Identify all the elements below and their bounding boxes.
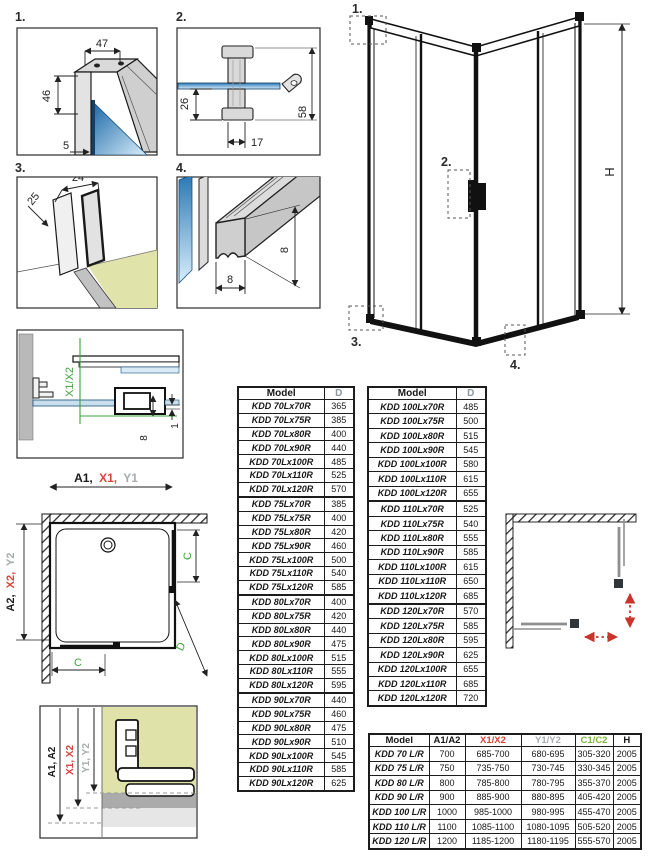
value-cell: 485 [456, 400, 486, 414]
model-cell: KDD 90Lx75R [238, 707, 324, 721]
table-row: KDD 110Lx120R685 [368, 589, 486, 604]
value-cell: 555 [324, 665, 354, 679]
value-cell: 595 [324, 678, 354, 692]
table-row: KDD 75Lx100R500 [238, 553, 354, 567]
model-cell: KDD 70 L/R [369, 747, 429, 762]
column-header-model: Model [238, 387, 324, 400]
model-cell: KDD 110Lx70R [368, 501, 456, 516]
model-cell: KDD 80Lx100R [238, 651, 324, 665]
adjust-a-label: A1, A2 [47, 746, 58, 777]
dim-25: 25 [25, 191, 42, 208]
adjust-x-label: X1, X2 [65, 745, 76, 775]
model-cell: KDD 70Lx90R [238, 441, 324, 455]
value-cell: 625 [456, 648, 486, 662]
table-row: KDD 70Lx75R385 [238, 413, 354, 427]
table-row: KDD 70Lx90R440 [238, 441, 354, 455]
model-cell: KDD 90Lx110R [238, 762, 324, 776]
model-cell: KDD 70Lx70R [238, 400, 324, 414]
value-cell: 730-745 [521, 761, 575, 776]
header-row: ModelA1/A2X1/X2Y1/Y2C1/C2H [369, 734, 641, 747]
dim-5: 5 [63, 140, 69, 152]
value-cell: 2005 [613, 790, 641, 805]
model-cell: KDD 75Lx120R [238, 580, 324, 594]
table-row: KDD 120Lx120R720 [368, 691, 486, 706]
table-row: KDD 75Lx80R420 [238, 525, 354, 539]
detail-4-label: 4. [176, 161, 186, 175]
model-cell: KDD 70Lx100R [238, 455, 324, 469]
column-header-y1-y2: Y1/Y2 [521, 734, 575, 747]
model-cell: KDD 90Lx70R [238, 693, 324, 707]
value-cell: 615 [456, 560, 486, 574]
model-cell: KDD 90Lx90R [238, 735, 324, 749]
value-cell: 475 [324, 637, 354, 651]
value-cell: 685 [456, 589, 486, 604]
table-row: KDD 90Lx90R510 [238, 735, 354, 749]
width-span-label: A1, X1, Y1 [74, 471, 138, 485]
detail-1-label: 1. [15, 10, 25, 24]
column-header-h: H [613, 734, 641, 747]
value-cell: 330-345 [575, 761, 613, 776]
table-row: KDD 120Lx75R585 [368, 619, 486, 633]
seal-section-face [216, 218, 245, 258]
column-header-a1-a2: A1/A2 [429, 734, 465, 747]
wall-left [506, 514, 513, 648]
value-cell: 540 [456, 516, 486, 530]
value-cell: 440 [324, 441, 354, 455]
value-cell: 420 [324, 525, 354, 539]
value-cell: 2005 [613, 776, 641, 791]
value-cell: 555 [456, 531, 486, 545]
callout-1-label: 1. [352, 2, 362, 16]
table-row: KDD 80Lx90R475 [238, 637, 354, 651]
header-row: ModelD [368, 387, 486, 400]
model-cell: KDD 120Lx120R [368, 691, 456, 706]
model-cell: KDD 100Lx100R [368, 457, 456, 471]
side-pane [199, 175, 208, 270]
model-cell: KDD 80Lx110R [238, 665, 324, 679]
value-cell: 735-750 [465, 761, 521, 776]
model-cell: KDD 75Lx100R [238, 553, 324, 567]
value-cell: 650 [456, 574, 486, 588]
value-cell: 2005 [613, 761, 641, 776]
value-cell: 685 [456, 676, 486, 690]
depth-span-label: A2, X2, Y2 [5, 552, 17, 611]
column-header-x1-x2: X1/X2 [465, 734, 521, 747]
value-cell: 800 [429, 776, 465, 791]
model-cell: KDD 120Lx90R [368, 648, 456, 662]
dim-46: 46 [41, 90, 53, 102]
value-cell: 880-895 [521, 790, 575, 805]
value-cell: 420 [324, 609, 354, 623]
value-cell: 525 [324, 469, 354, 483]
handle-right [169, 586, 176, 593]
model-cell: KDD 120Lx70R [368, 604, 456, 619]
value-cell: 655 [456, 662, 486, 676]
value-cell: 405-420 [575, 790, 613, 805]
table-row: KDD 100 L/R1000985-1000980-995455-470200… [369, 805, 641, 820]
wall [19, 334, 33, 440]
table-row: KDD 80Lx110R555 [238, 665, 354, 679]
model-cell: KDD 90 L/R [369, 790, 429, 805]
dim-24: 24 [72, 172, 84, 184]
model-cell: KDD 120 L/R [369, 834, 429, 849]
dim-8-right: 8 [279, 247, 291, 253]
value-cell: 400 [324, 595, 354, 609]
model-cell: KDD 80Lx75R [238, 609, 324, 623]
value-cell: 580 [456, 457, 486, 471]
table-row: KDD 110Lx75R540 [368, 516, 486, 530]
table-row: KDD 80Lx70R400 [238, 595, 354, 609]
c-right-label: C [182, 552, 194, 560]
table-row: KDD 70Lx110R525 [238, 469, 354, 483]
table-row: KDD 70Lx80R400 [238, 427, 354, 441]
table-row: KDD 80Lx100R515 [238, 651, 354, 665]
value-cell: 585 [456, 619, 486, 633]
adjustment-detail-drawing: A1, A2 X1, X2 Y1, Y2 [47, 707, 196, 837]
value-cell: 585 [456, 545, 486, 559]
glass-pane-front [53, 193, 78, 275]
value-cell: 555-570 [575, 834, 613, 849]
model-cell: KDD 120Lx75R [368, 619, 456, 633]
size-table-d-left: ModelDKDD 70Lx70R365KDD 70Lx75R385KDD 70… [237, 386, 355, 792]
table-row: KDD 70Lx100R485 [238, 455, 354, 469]
table-row: KDD 100Lx80R515 [368, 428, 486, 442]
model-cell: KDD 100Lx75R [368, 414, 456, 428]
column-header-model: Model [368, 387, 456, 400]
model-cell: KDD 70Lx110R [238, 469, 324, 483]
table-row: KDD 120 L/R12001185-12001180-1195555-570… [369, 834, 641, 849]
value-cell: 615 [456, 472, 486, 486]
value-cell: 485 [324, 455, 354, 469]
value-cell: 545 [456, 443, 486, 457]
value-cell: 1100 [429, 819, 465, 834]
table-row: KDD 70 L/R700685-700680-695305-3202005 [369, 747, 641, 762]
enclosure-isometric-drawing: H 1. 2. 3. 4. [349, 2, 630, 372]
model-cell: KDD 70Lx80R [238, 427, 324, 441]
fixed-glass [33, 400, 117, 406]
table-row: KDD 120Lx110R685 [368, 676, 486, 690]
model-cell: KDD 100 L/R [369, 805, 429, 820]
value-cell: 985-1000 [465, 805, 521, 820]
plan-view-drawing: C C D A2, X2, Y2 [5, 514, 207, 683]
table-row: KDD 75 L/R750735-750730-745330-3452005 [369, 761, 641, 776]
table-row: KDD 90Lx110R585 [238, 762, 354, 776]
value-cell: 780-795 [521, 776, 575, 791]
model-cell: KDD 75Lx110R [238, 567, 324, 581]
table-row: KDD 80Lx75R420 [238, 609, 354, 623]
model-cell: KDD 110Lx120R [368, 589, 456, 604]
value-cell: 570 [324, 482, 354, 496]
size-table-d-right: ModelDKDD 100Lx70R485KDD 100Lx75R500KDD … [367, 386, 487, 707]
table-row: KDD 75Lx120R585 [238, 580, 354, 594]
model-cell: KDD 100Lx80R [368, 428, 456, 442]
value-cell: 720 [456, 691, 486, 706]
table-row: KDD 70Lx120R570 [238, 482, 354, 496]
section-detail-drawing: X1/X2 8 1 [19, 334, 181, 441]
model-cell: KDD 90Lx100R [238, 749, 324, 763]
value-cell: 885-900 [465, 790, 521, 805]
value-cell: 700 [429, 747, 465, 762]
table-row: KDD 75Lx70R385 [238, 497, 354, 511]
table-row: KDD 75Lx75R400 [238, 511, 354, 525]
value-cell: 505-520 [575, 819, 613, 834]
value-cell: 1185-1200 [465, 834, 521, 849]
column-header-c1-c2: C1/C2 [575, 734, 613, 747]
model-cell: KDD 75Lx75R [238, 511, 324, 525]
table-row: KDD 100Lx120R655 [368, 486, 486, 501]
value-cell: 475 [324, 721, 354, 735]
table-row: KDD 90Lx75R460 [238, 707, 354, 721]
value-cell: 750 [429, 761, 465, 776]
value-cell: 385 [324, 497, 354, 511]
value-cell: 980-995 [521, 805, 575, 820]
value-cell: 355-370 [575, 776, 613, 791]
glass-pane [178, 83, 280, 89]
table-row: KDD 110Lx100R615 [368, 560, 486, 574]
table-row: KDD 110Lx80R555 [368, 531, 486, 545]
adjust-y-label: Y1, Y2 [81, 743, 92, 773]
column-header-model: Model [369, 734, 429, 747]
table-row: KDD 80 L/R800785-800780-795355-3702005 [369, 776, 641, 791]
table-row: KDD 70Lx70R365 [238, 400, 354, 414]
shower-tray [50, 523, 175, 648]
model-cell: KDD 110 L/R [369, 819, 429, 834]
model-cell: KDD 80Lx90R [238, 637, 324, 651]
model-cell: KDD 80Lx80R [238, 623, 324, 637]
model-cell: KDD 75Lx80R [238, 525, 324, 539]
model-cell: KDD 75Lx70R [238, 497, 324, 511]
value-cell: 1180-1195 [521, 834, 575, 849]
model-cell: KDD 100Lx90R [368, 443, 456, 457]
value-cell: 1200 [429, 834, 465, 849]
wall-top [42, 514, 207, 523]
table-row: KDD 120Lx70R570 [368, 604, 486, 619]
table-row: KDD 90Lx70R440 [238, 693, 354, 707]
handle-bottom [570, 619, 579, 628]
dim-8-section: 8 [139, 435, 150, 441]
value-cell: 460 [324, 707, 354, 721]
model-cell: KDD 75 L/R [369, 761, 429, 776]
value-cell: 570 [456, 604, 486, 619]
dimension-table-main: ModelA1/A2X1/X2Y1/Y2C1/C2HKDD 70 L/R7006… [368, 733, 642, 850]
detail-3-label: 3. [15, 161, 25, 175]
value-cell: 655 [456, 486, 486, 501]
value-cell: 595 [456, 633, 486, 647]
value-cell: 440 [324, 693, 354, 707]
value-cell: 305-320 [575, 747, 613, 762]
value-cell: 1080-1095 [521, 819, 575, 834]
dim-58: 58 [297, 106, 309, 118]
wall-post [75, 72, 91, 155]
model-cell: KDD 110Lx100R [368, 560, 456, 574]
value-cell: 900 [429, 790, 465, 805]
width-span-dimension: A1, X1, Y1 [50, 471, 172, 487]
model-cell: KDD 110Lx90R [368, 545, 456, 559]
value-cell: 515 [456, 428, 486, 442]
model-cell: KDD 100Lx110R [368, 472, 456, 486]
door-handle [468, 180, 486, 212]
handle-bottom [113, 642, 120, 649]
value-cell: 385 [324, 413, 354, 427]
model-cell: KDD 100Lx120R [368, 486, 456, 501]
table-row: KDD 100Lx110R615 [368, 472, 486, 486]
sliding-direction-diagram [506, 514, 636, 648]
value-cell: 510 [324, 735, 354, 749]
value-cell: 540 [324, 567, 354, 581]
model-cell: KDD 80 L/R [369, 776, 429, 791]
value-cell: 2005 [613, 834, 641, 849]
model-cell: KDD 75Lx90R [238, 539, 324, 553]
value-cell: 685-700 [465, 747, 521, 762]
table-row: KDD 120Lx90R625 [368, 648, 486, 662]
dim-1-section: 1 [170, 423, 181, 429]
wall-left [42, 514, 50, 683]
dim-47: 47 [96, 38, 108, 50]
model-cell: KDD 110Lx75R [368, 516, 456, 530]
model-cell: KDD 70Lx120R [238, 482, 324, 496]
value-cell: 455-470 [575, 805, 613, 820]
value-cell: 400 [324, 511, 354, 525]
callout-4-label: 4. [510, 358, 520, 372]
table-row: KDD 120Lx80R595 [368, 633, 486, 647]
value-cell: 2005 [613, 819, 641, 834]
x1-x2-line-label: X1/X2 [64, 367, 76, 397]
model-cell: KDD 120Lx100R [368, 662, 456, 676]
table-row: KDD 90Lx120R625 [238, 776, 354, 791]
table-row: KDD 90 L/R900885-900880-895405-4202005 [369, 790, 641, 805]
detail-3-glass-joint-drawing: 24 25 [17, 172, 157, 308]
value-cell: 680-695 [521, 747, 575, 762]
model-cell: KDD 120Lx110R [368, 676, 456, 690]
value-cell: 500 [456, 414, 486, 428]
model-cell: KDD 110Lx80R [368, 531, 456, 545]
model-cell: KDD 70Lx75R [238, 413, 324, 427]
value-cell: 525 [456, 501, 486, 516]
table-row: KDD 110Lx90R585 [368, 545, 486, 559]
value-cell: 785-800 [465, 776, 521, 791]
value-cell: 2005 [613, 747, 641, 762]
wall-top [506, 514, 636, 522]
table-row: KDD 75Lx90R460 [238, 539, 354, 553]
handle-right [614, 579, 623, 588]
table-row: KDD 100Lx75R500 [368, 414, 486, 428]
model-cell: KDD 80Lx120R [238, 678, 324, 692]
table-row: KDD 80Lx120R595 [238, 678, 354, 692]
glass-pane [179, 175, 192, 283]
value-cell: 625 [324, 776, 354, 791]
callout-3-label: 3. [351, 335, 361, 349]
value-cell: 460 [324, 539, 354, 553]
detail-2-handle-drawing: 26 17 58 [178, 46, 317, 149]
value-cell: 365 [324, 400, 354, 414]
detail-2-label: 2. [176, 10, 186, 24]
value-cell: 400 [324, 427, 354, 441]
model-cell: KDD 120Lx80R [368, 633, 456, 647]
table-row: KDD 120Lx100R655 [368, 662, 486, 676]
detail-1-wall-profile-drawing: 47 46 5 [41, 38, 157, 155]
model-cell: KDD 90Lx80R [238, 721, 324, 735]
dim-26: 26 [179, 98, 191, 110]
dim-8-bottom: 8 [227, 274, 233, 286]
table-row: KDD 110Lx70R525 [368, 501, 486, 516]
value-cell: 585 [324, 762, 354, 776]
table-row: KDD 110 L/R11001085-11001080-1095505-520… [369, 819, 641, 834]
table-row: KDD 100Lx90R545 [368, 443, 486, 457]
table-row: KDD 90Lx100R545 [238, 749, 354, 763]
value-cell: 1000 [429, 805, 465, 820]
table-row: KDD 100Lx100R580 [368, 457, 486, 471]
model-cell: KDD 80Lx70R [238, 595, 324, 609]
value-cell: 585 [324, 580, 354, 594]
spec-sheet-page: 1. 2. 3. 4. 47 46 5 [0, 0, 651, 860]
table-row: KDD 100Lx70R485 [368, 400, 486, 414]
height-dim-label: H [602, 167, 617, 176]
model-cell: KDD 110Lx110R [368, 574, 456, 588]
glass-pane-back [82, 190, 104, 266]
header-row: ModelD [238, 387, 354, 400]
value-cell: 440 [324, 623, 354, 637]
column-header-d: D [324, 387, 354, 400]
table-row: KDD 80Lx80R440 [238, 623, 354, 637]
model-cell: KDD 100Lx70R [368, 400, 456, 414]
d-diagonal-label: D [174, 641, 188, 653]
value-cell: 2005 [613, 805, 641, 820]
column-header-d: D [456, 387, 486, 400]
value-cell: 545 [324, 749, 354, 763]
c-bottom-label: C [74, 657, 82, 669]
value-cell: 1085-1100 [465, 819, 521, 834]
model-cell: KDD 90Lx120R [238, 776, 324, 791]
value-cell: 515 [324, 651, 354, 665]
callout-2-label: 2. [441, 155, 451, 169]
table-row: KDD 75Lx110R540 [238, 567, 354, 581]
door-glass [121, 367, 179, 373]
table-row: KDD 90Lx80R475 [238, 721, 354, 735]
table-row: KDD 110Lx110R650 [368, 574, 486, 588]
value-cell: 500 [324, 553, 354, 567]
dim-17: 17 [251, 137, 263, 149]
